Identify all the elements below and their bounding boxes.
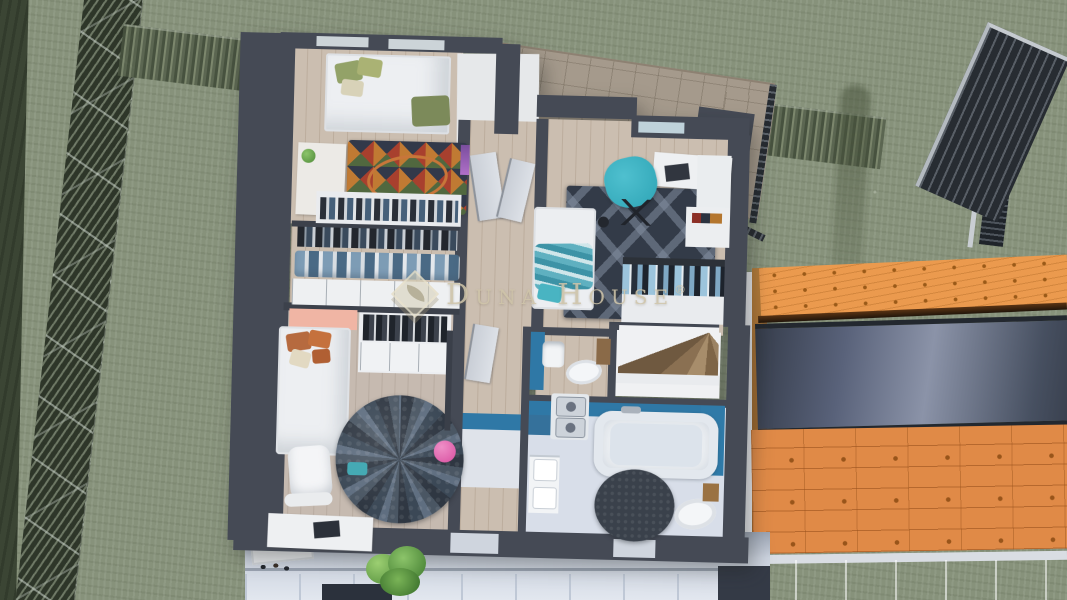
winder-staircase <box>618 325 719 380</box>
teal-stool <box>347 462 367 476</box>
bath-faucet <box>621 406 641 414</box>
hall-blue-accent <box>462 413 524 431</box>
floor-plan-render: Duna House® <box>0 0 1067 600</box>
entry-wall <box>494 44 520 135</box>
large-plant <box>362 546 432 598</box>
neighbor-pergola-roof <box>915 22 1067 222</box>
pillow <box>340 79 364 98</box>
books <box>692 213 722 224</box>
facade-under-roof <box>745 560 1067 600</box>
pillow <box>312 349 331 364</box>
mesh-fence <box>11 0 144 600</box>
washer-dryer-stack <box>550 393 589 440</box>
brand-name: Duna House <box>446 277 674 311</box>
hall-nook-floor <box>461 429 524 489</box>
leaf-icon <box>405 285 427 302</box>
laptop <box>313 520 340 538</box>
roof-shingles-lower <box>751 424 1067 553</box>
south-door-opening <box>613 539 655 558</box>
armchair-footrest <box>284 492 333 507</box>
washer-drum <box>556 396 587 417</box>
window <box>388 39 444 50</box>
registered-mark: ® <box>674 282 686 296</box>
watermark-text: Duna House® <box>446 277 686 311</box>
double-vanity <box>528 455 560 514</box>
blanket <box>411 95 450 127</box>
neighbor-roof <box>745 252 1067 600</box>
laptop <box>664 163 690 182</box>
wood-stool <box>703 483 719 501</box>
pillow <box>357 57 384 79</box>
wardrobe-drawers <box>360 342 449 372</box>
bathtub-basin <box>610 423 703 467</box>
south-door-opening <box>450 533 499 554</box>
dryer-drum <box>555 417 586 438</box>
roof-skylight-band <box>755 315 1067 436</box>
watermark: Duna House® <box>398 268 698 320</box>
window <box>316 36 368 47</box>
hall-north-wall <box>537 95 638 120</box>
wood-shelf <box>596 338 611 364</box>
outer-wall-east-lower <box>722 325 750 553</box>
chair-base <box>618 199 655 226</box>
wall-art <box>460 145 470 175</box>
hanging-clothes <box>320 197 459 223</box>
washbasin <box>542 341 565 368</box>
diamond-leaf-icon <box>391 270 439 318</box>
clothes-rail <box>297 227 457 251</box>
terrace-door-glass <box>638 121 684 133</box>
